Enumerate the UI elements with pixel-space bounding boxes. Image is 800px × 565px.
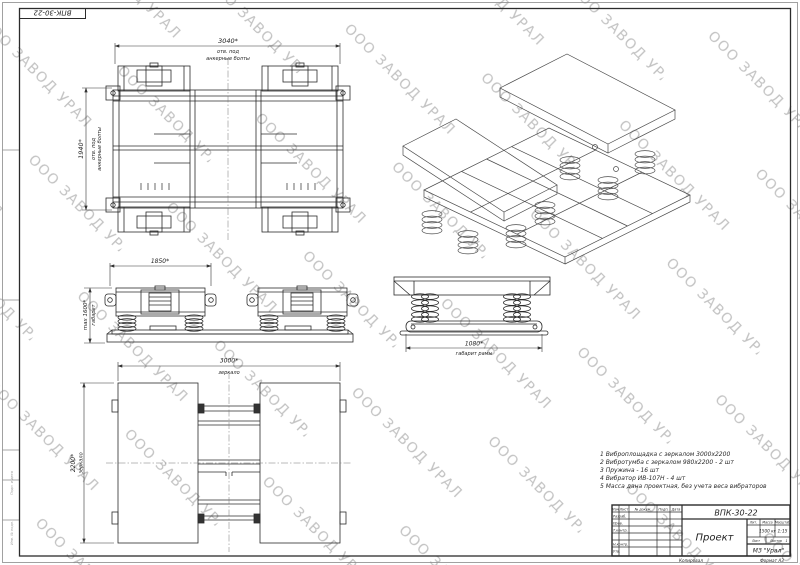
tb-scale-value: 1:15	[777, 529, 787, 535]
bottom-view-dim-note: зеркало	[79, 452, 85, 473]
stamp-designation: ВПК-30-22	[33, 9, 71, 17]
tb-sheet-label: Лист	[751, 539, 760, 543]
top-view-dim-width: 3040*	[218, 37, 239, 45]
frame-left-label: Инв. № подл.	[10, 521, 14, 545]
top-view-dim-note: отв. под	[217, 49, 239, 55]
tb-row-label: Т.контр.	[613, 529, 628, 533]
side-view-dim-note: габарит рамы	[456, 351, 493, 357]
tb-header-col: Дата	[671, 508, 681, 512]
front-view-dim-height: max 1600*	[83, 300, 89, 331]
tb-designation: ВПК-30-22	[714, 509, 757, 518]
tb-name: Проект	[695, 533, 734, 544]
bottom-view-dim-note: зеркало	[218, 370, 239, 376]
tb-row-label: Н.контр.	[613, 543, 628, 547]
side-view-dim-width: 1080*	[465, 341, 483, 348]
tb-header-col: Изм	[612, 508, 619, 512]
tb-col-mass: Масса	[762, 521, 772, 525]
frame-left-label: Подп. и дата	[10, 471, 14, 495]
tb-row-label: Утв.	[613, 550, 620, 554]
tb-header-col: Лист	[619, 508, 630, 512]
top-view-dim-note: анкерные болты	[206, 56, 250, 62]
front-view-dim-width: 1850*	[151, 258, 169, 265]
note-line: 4 Вибратор ИВ-107Н - 4 шт	[600, 475, 686, 482]
tb-col-lit: Лит.	[749, 521, 757, 525]
drawing-sheet: ООО ЗАВОД УРАЛ ООО ЗАВОД УРАЛ Подп. и	[0, 0, 800, 565]
tb-header-col: № докум.	[634, 508, 652, 512]
tb-sheets-value: 1	[785, 539, 787, 543]
top-view-dim-height: 1940*	[77, 138, 85, 159]
bottom-view-dim-width: 3000*	[220, 358, 238, 365]
tb-col-scale: Масштаб	[775, 521, 790, 525]
tb-mass-value: 1500 кг	[759, 529, 777, 534]
tb-sheets-label: Листов	[769, 539, 782, 543]
tb-org: МЗ "Урал"	[753, 548, 785, 555]
note-line: 2 Вибротумба с зеркалом 980х2200 - 2 шт	[600, 459, 734, 466]
tb-header-col: Подп.	[658, 508, 668, 512]
note-line: 5 Масса дана проектная, без учета веса в…	[600, 483, 767, 490]
note-line: 1 Виброплощадка с зеркалом 3000х2200	[600, 451, 730, 458]
note-line: 3 Пружина - 16 шт	[600, 467, 660, 474]
bottom-view-dim-height: 2200*	[70, 454, 77, 472]
drawing-canvas: ООО ЗАВОД УРАЛ ООО ЗАВОД УРАЛ Подп. и	[0, 0, 800, 565]
front-view-dim-note: габарит	[91, 303, 97, 325]
tb-copied-label: Копировал	[679, 558, 703, 563]
tb-row-label: Разраб.	[613, 515, 626, 519]
top-view-dim-note: анкерные болты	[97, 127, 103, 171]
tb-row-label: Пров.	[613, 522, 623, 526]
tb-format-label: Формат А3	[760, 558, 784, 563]
